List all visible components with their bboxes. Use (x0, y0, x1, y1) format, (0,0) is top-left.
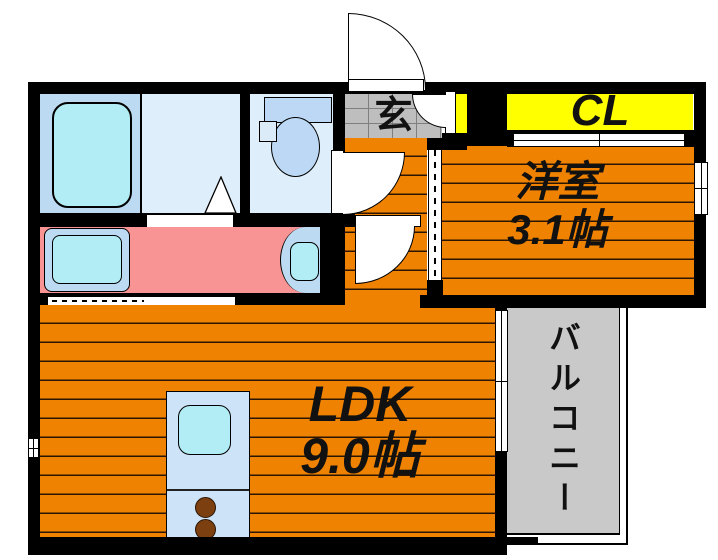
toilet-paper-holder (259, 121, 277, 142)
door-swing-triangle (204, 176, 238, 214)
western-room-size: 3.1帖 (507, 206, 607, 254)
wall (240, 82, 250, 215)
toilet-bowl (271, 117, 320, 177)
wall (427, 280, 443, 308)
closet-area: CL (507, 92, 693, 130)
wash-basin-counter (280, 227, 322, 293)
wall-opening (147, 215, 233, 227)
washing-machine-pan (44, 228, 130, 292)
kitchen-sink (178, 405, 231, 455)
bathtub (52, 102, 132, 208)
balcony-label: バルコニー (540, 321, 586, 521)
wall (507, 537, 538, 545)
wall (320, 227, 345, 305)
sliding-door-washroom (48, 297, 235, 305)
wall (28, 82, 40, 555)
shoe-box (445, 91, 456, 134)
sliding-door-track (52, 300, 144, 302)
ldk-label: LDK 9.0帖 (225, 376, 495, 484)
floor-plan: CL バルコニー 玄 (0, 0, 718, 560)
washing-machine-pan-inner (52, 235, 122, 284)
wall (140, 94, 142, 213)
balcony-area: バルコニー (507, 308, 628, 545)
wall (331, 213, 355, 227)
window-ldk-left (28, 438, 39, 458)
closet-door (513, 133, 685, 147)
wash-basin (290, 242, 319, 281)
entrance-door-leaf (348, 79, 424, 92)
western-room-name: 洋室 (515, 158, 599, 206)
ldk-size: 9.0帖 (300, 430, 420, 482)
window-balcony-sliding (495, 310, 508, 452)
western-room-label: 洋室 3.1帖 (430, 156, 685, 256)
wall (28, 537, 507, 555)
stove-burner (195, 497, 216, 518)
wall (420, 295, 706, 308)
kitchen-divider (167, 489, 249, 491)
wall (467, 82, 507, 146)
window-western-room (694, 162, 708, 215)
ldk-name: LDK (309, 378, 412, 430)
balcony-floor: バルコニー (507, 308, 620, 535)
genkan-label: 玄 (374, 97, 412, 135)
